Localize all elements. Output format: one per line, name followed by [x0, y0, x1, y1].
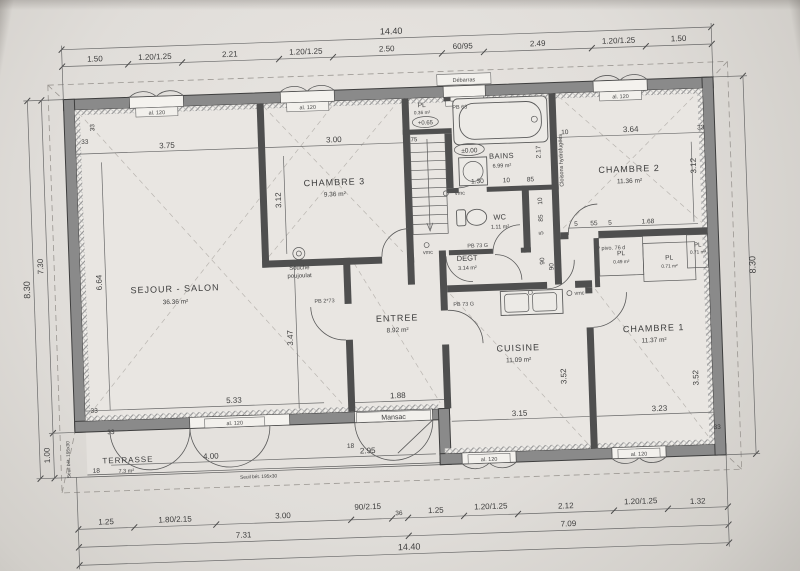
- room-cuisine-name: CUISINE: [496, 342, 540, 354]
- room-wc-name: WC: [493, 212, 506, 221]
- closet-pl1-area: 0.49 m²: [613, 259, 630, 266]
- vmc-label-bains: vmc: [455, 191, 466, 197]
- dim-ch2-top: 3.64: [623, 125, 639, 135]
- dim-wall33: 33: [697, 124, 705, 131]
- dim-bains-right: 2.17: [535, 145, 542, 158]
- dim-bot-8: 1.20/1.25: [624, 496, 658, 506]
- debarras-label: Débarras: [452, 77, 475, 84]
- window-tag: al. 120: [299, 105, 316, 112]
- closet-pl2-area: 0.71 m²: [661, 263, 678, 270]
- seuil-label-bottom: Seuil bét. 195x30: [240, 473, 278, 480]
- dim-total-width: 14.40: [380, 26, 403, 37]
- room-ch2-area: 11.36 m²: [617, 177, 643, 185]
- window-bottom-1: al. 120: [462, 451, 517, 469]
- dim-bottom-left-sub: 7.31: [236, 530, 252, 540]
- window-top-3: al. 120: [593, 74, 648, 101]
- room-terrasse-name: TERRASSE: [102, 455, 153, 466]
- dim-wc-r3: 5: [538, 231, 545, 235]
- dim-ch1-bottom: 3.23: [652, 404, 668, 414]
- mansac-label: Mansac: [381, 414, 406, 422]
- room-terrasse-area: 7.3 m²: [118, 468, 134, 475]
- dim-top-4: 2.50: [379, 44, 395, 54]
- dim-top-6: 2.49: [530, 39, 546, 49]
- window-tag: al. 120: [481, 457, 498, 464]
- dim-wc-r1: 10: [537, 197, 544, 205]
- souche-label-1: Souche: [289, 265, 310, 272]
- dim-bot-2: 3.00: [275, 511, 291, 521]
- closet-pl3-area: 0.71 m²: [690, 249, 707, 256]
- dim-wall33: 33: [713, 424, 721, 431]
- room-ch3-area: 9.36 m²: [324, 191, 347, 199]
- window-tag: al. 120: [631, 451, 648, 458]
- window-top-2: al. 120: [280, 85, 335, 112]
- door-tag-pb73g-cuisine: PB 73 G: [453, 301, 474, 308]
- dim-top-8: 1.50: [671, 34, 687, 44]
- room-ch1-area: 11.37 m²: [641, 337, 667, 345]
- dim-bains-b1: 1.30: [471, 178, 484, 185]
- dim-pltop: 75: [411, 137, 419, 143]
- closet-pltop-area: 0.36 m²: [414, 110, 431, 117]
- dim-bains-b2: 10: [503, 177, 511, 184]
- room-degt-name: DEGT: [457, 253, 479, 263]
- dim-ch2-b2: 55: [590, 220, 598, 227]
- dim-top-3: 1.20/1.25: [289, 47, 323, 57]
- dim-sejour-top: 3.75: [159, 141, 175, 151]
- window-bottom-2: al. 120: [612, 446, 667, 464]
- dim-wall33: 33: [89, 124, 96, 132]
- dim-top-7: 1.20/1.25: [602, 36, 636, 46]
- room-bains-area: 6.99 m²: [492, 163, 511, 170]
- door-tag-pb73g-degt: PB 73 G: [467, 243, 488, 250]
- dim-ch3-left: 3.12: [274, 192, 284, 208]
- dim-sejour-bottom: 5.33: [226, 396, 242, 406]
- dim-wall33: 33: [81, 139, 89, 146]
- dim-terrasse-3: 18: [93, 468, 101, 475]
- room-degt-area: 3.14 m²: [458, 265, 477, 272]
- vmc-label-hall: vmc: [423, 250, 434, 256]
- dim-sejour-right: 3.47: [285, 329, 295, 345]
- dim-height-right: 8.30: [747, 256, 758, 274]
- room-entree-name: ENTREE: [376, 312, 419, 323]
- closet-pl3-name: PL: [694, 242, 702, 248]
- dim-bot-6: 1.20/1.25: [474, 501, 508, 511]
- vmc-label-cuisine: vmc: [574, 291, 585, 297]
- dim-wc-r4: 90: [539, 257, 546, 265]
- dim-height-lower: 1.00: [42, 447, 52, 463]
- dim-top-1: 1.20/1.25: [138, 52, 172, 62]
- floor-plan-drawing: al. 120 al. 120 Débarras al. 60: [0, 0, 800, 571]
- dim-bot-5: 1.25: [428, 506, 444, 516]
- dim-height-upper: 7.30: [36, 258, 46, 274]
- dim-bot-1: 1.80/2.15: [158, 514, 192, 524]
- dim-terrasse-1: 4.00: [203, 451, 219, 461]
- window-tag: al. 120: [149, 110, 166, 117]
- dim-ch1-right: 3.52: [691, 369, 701, 385]
- room-sejour-area: 36.36 m²: [163, 298, 190, 306]
- dim-terrasse-2: 2.95: [360, 446, 376, 456]
- dim-bot-0: 1.25: [98, 517, 114, 527]
- window-tag: al. 120: [226, 421, 243, 428]
- closet-pltop-name: PL: [418, 102, 427, 109]
- dim-wall33: 33: [90, 408, 98, 415]
- kitchen-sink: [500, 289, 563, 315]
- floor-plan-photo: al. 120 al. 120 Débarras al. 60: [0, 0, 800, 571]
- door-tag-pb273: PB 2*73: [314, 298, 334, 305]
- level-marker: ±0.00: [461, 147, 478, 155]
- dim-bot-3: 90/2.15: [354, 502, 382, 512]
- dim-cuisine-bottom: 3.15: [512, 409, 528, 419]
- window-top-1: al. 120: [129, 90, 184, 117]
- dim-corridor: 90: [548, 263, 555, 271]
- dim-bot-4: 36: [395, 510, 403, 517]
- room-cuisine-area: 11.09 m²: [506, 356, 532, 364]
- level-marker-pltop: +0.65: [418, 120, 434, 127]
- dim-bains-b3: 85: [527, 176, 535, 183]
- dim-top-5: 60/95: [453, 41, 474, 51]
- dim-wall33: 33: [107, 429, 115, 436]
- dim-bot-9: 1.32: [690, 496, 706, 506]
- room-entree-area: 8.92 m²: [386, 327, 409, 335]
- dim-ch2-right: 3.12: [689, 157, 699, 173]
- souche-label-2: poujoulat: [287, 273, 312, 280]
- dim-top-2: 2.21: [222, 50, 238, 60]
- dim-ch2-b3: 5: [608, 220, 612, 227]
- bathtub: [453, 96, 549, 145]
- dim-ch2-b4: 1.68: [641, 218, 654, 225]
- dim-ch3-top: 3.00: [326, 135, 342, 145]
- dim-top-0: 1.50: [87, 54, 103, 64]
- toilet: [456, 209, 487, 226]
- dim-bottom-right-sub: 7.09: [560, 519, 576, 529]
- closet-pl2-name: PL: [665, 254, 674, 261]
- door-tag-pb63: PB 63: [452, 105, 467, 112]
- dim-height-left: 8.30: [22, 281, 33, 299]
- room-wc-area: 1.11 m²: [491, 224, 510, 231]
- dim-terrasse-4: 18: [347, 443, 355, 450]
- dim-total-width-bottom: 14.40: [398, 541, 421, 552]
- window-tag: al. 120: [612, 94, 629, 101]
- dim-entree: 1.88: [390, 391, 406, 401]
- dim-bot-7: 2.12: [558, 501, 574, 511]
- dim-cuisine-right: 3.52: [559, 368, 569, 384]
- dim-wc-r2: 85: [538, 214, 545, 222]
- dim-sejour-left: 6.64: [94, 274, 104, 290]
- room-bains-name: BAINS: [489, 151, 514, 161]
- dim-ch2-b1: 5: [574, 221, 578, 228]
- door-tag-ppivo: P pivo. 76 d: [596, 245, 625, 252]
